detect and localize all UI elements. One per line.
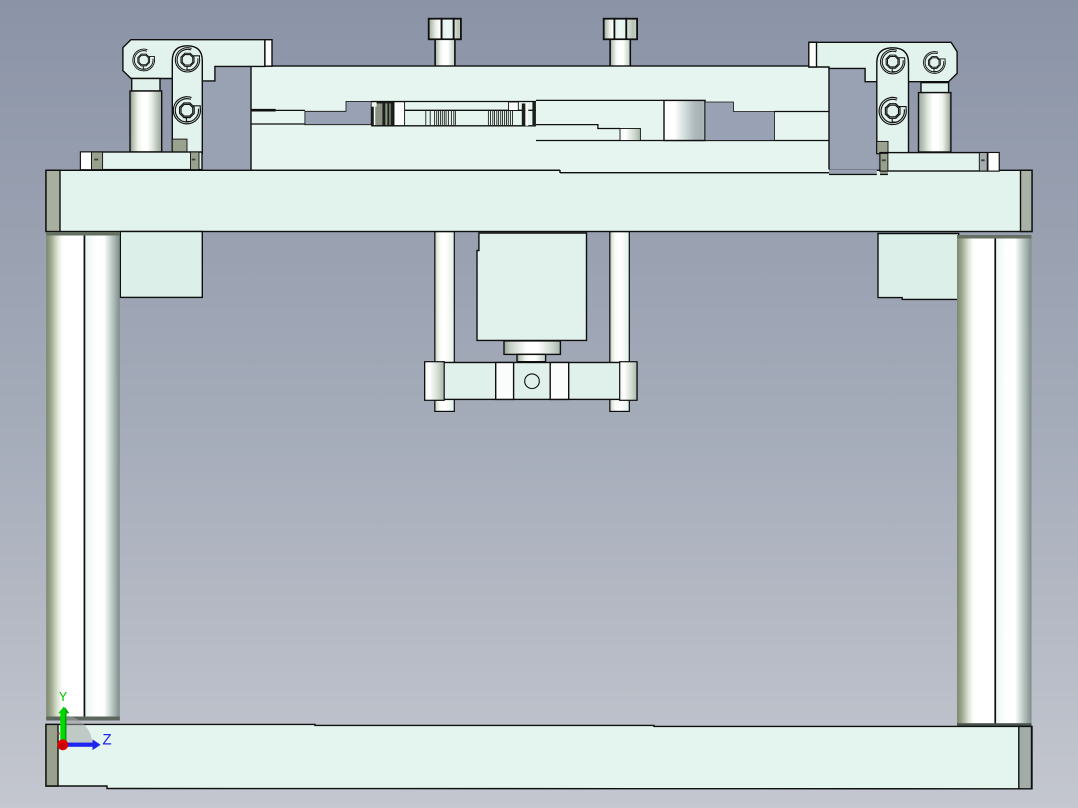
- svg-text:Y: Y: [59, 691, 67, 706]
- svg-text:Z: Z: [102, 732, 111, 750]
